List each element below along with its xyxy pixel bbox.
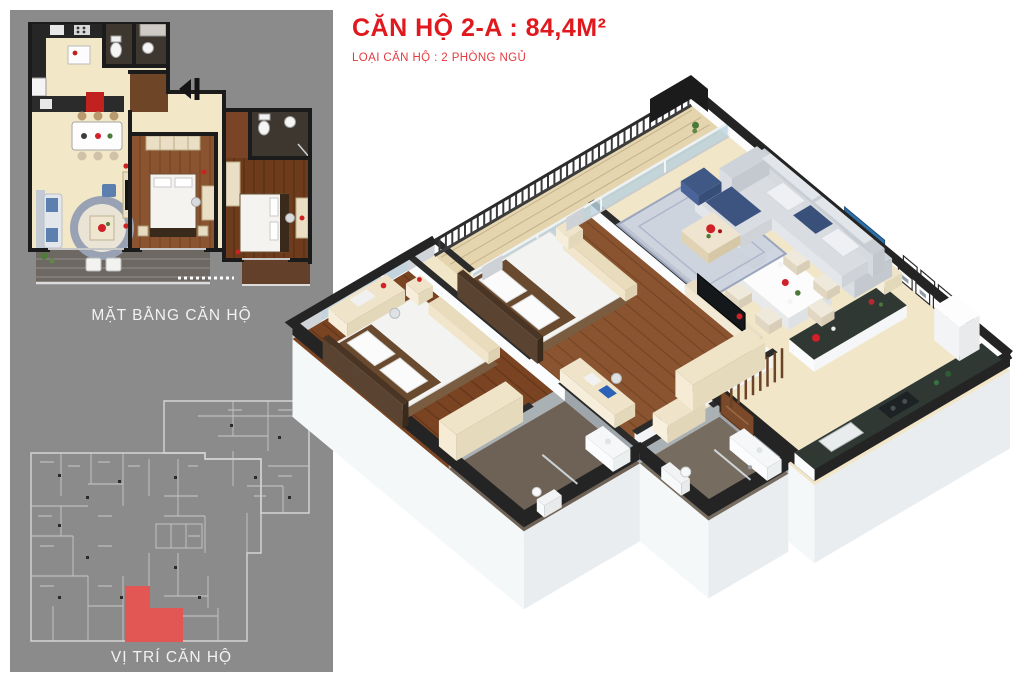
sidebar-panel: MẶT BẰNG CĂN HỘ [10, 10, 333, 672]
page-subtitle: LOẠI CĂN HỘ : 2 PHÒNG NGỦ [352, 52, 606, 64]
highlighted-unit [125, 586, 183, 642]
kitchen-counter [789, 285, 1002, 482]
title-block: CĂN HỘ 2-A : 84,4M² LOẠI CĂN HỘ : 2 PHÒN… [352, 14, 606, 64]
floorplan-caption: MẶT BẰNG CĂN HỘ [10, 307, 333, 325]
exterior-wall-tops [293, 75, 1011, 527]
interior-wall-tops [406, 200, 794, 462]
floorplan-2d [28, 22, 312, 292]
dining-set [725, 241, 840, 334]
location-figure [28, 396, 312, 646]
bathrooms [532, 426, 781, 518]
balcony-plant [692, 122, 699, 134]
page-title: CĂN HỘ 2-A : 84,4M² [352, 14, 606, 43]
bedroom-2 [323, 275, 523, 461]
brochure-page: MẶT BẰNG CĂN HỘ [0, 0, 1024, 682]
sliding-glass-doors [472, 122, 729, 286]
interior-walls [293, 89, 1011, 474]
location-caption: VỊ TRÍ CĂN HỘ [10, 649, 333, 667]
exterior-faces [293, 323, 1011, 610]
bedroom-1 [457, 207, 765, 428]
location-plan [28, 396, 312, 646]
balcony-railing [435, 90, 692, 255]
floorplan-2d-figure [28, 22, 312, 292]
floors [293, 105, 1011, 531]
wall-decor [845, 207, 953, 319]
living-room [617, 146, 902, 351]
entrance [653, 348, 782, 443]
